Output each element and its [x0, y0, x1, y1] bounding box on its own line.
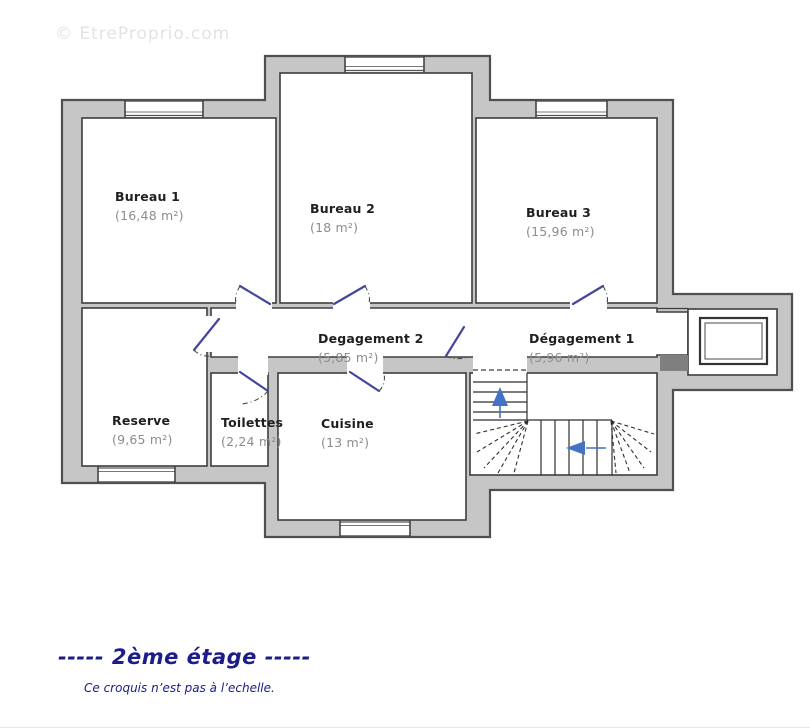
label-cuisine: Cuisine (13 m²) [321, 414, 374, 452]
room-name: Dégagement 1 [529, 329, 635, 348]
room-area: (13 m²) [321, 433, 374, 452]
floorplan: Bureau 1 (16,48 m²) Bureau 2 (18 m²) Bur… [0, 0, 810, 610]
scale-note: Ce croquis n’est pas à l’echelle. [84, 681, 275, 695]
stair-opening [473, 355, 527, 375]
wall-stub [660, 355, 688, 371]
room-area: (2,24 m²) [221, 432, 283, 451]
label-toilettes: Toilettes (2,24 m²) [221, 413, 283, 451]
room-area: (15,96 m²) [526, 222, 595, 241]
floorplan-page: © EtreProprio.com [0, 0, 810, 728]
room-area: (9,65 m²) [112, 430, 173, 449]
room-name: Bureau 1 [115, 187, 184, 206]
lift-cab [700, 318, 767, 364]
room-name: Bureau 3 [526, 203, 595, 222]
door-gap-toilettes [238, 355, 268, 375]
room-area: (5,96 m²) [529, 348, 635, 367]
floorplan-drawing [0, 0, 810, 610]
room-name: Cuisine [321, 414, 374, 433]
label-bureau3: Bureau 3 (15,96 m²) [526, 203, 595, 241]
label-degagement2: Degagement 2 (5,85 m²) [318, 329, 424, 367]
room-area: (5,85 m²) [318, 348, 424, 367]
room-area: (18 m²) [310, 218, 375, 237]
room-bureau2 [280, 73, 472, 303]
label-bureau2: Bureau 2 (18 m²) [310, 199, 375, 237]
room-area: (16,48 m²) [115, 206, 184, 225]
room-name: Degagement 2 [318, 329, 424, 348]
floor-title: ----- 2ème étage ----- [58, 645, 311, 669]
room-name: Bureau 2 [310, 199, 375, 218]
label-degagement1: Dégagement 1 (5,96 m²) [529, 329, 635, 367]
room-name: Reserve [112, 411, 173, 430]
stairwell [470, 373, 657, 475]
label-bureau1: Bureau 1 (16,48 m²) [115, 187, 184, 225]
room-name: Toilettes [221, 413, 283, 432]
label-reserve: Reserve (9,65 m²) [112, 411, 173, 449]
